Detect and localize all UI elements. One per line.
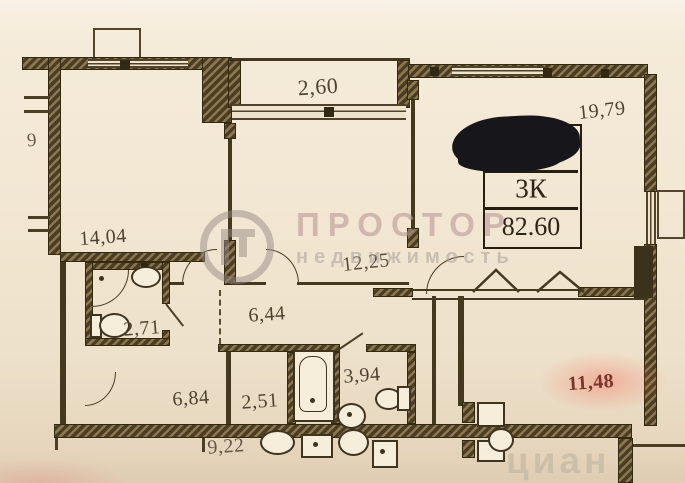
watermark-logo-glyph [239, 237, 247, 257]
exterior-basket [657, 190, 685, 239]
watermark-logo [200, 210, 274, 284]
wall-stub [24, 96, 50, 99]
bathtub-inner [299, 356, 327, 412]
wall-bottom-right-vert [618, 438, 633, 483]
wall-1148-top-chunk [578, 287, 636, 297]
bathtub-drain [310, 398, 315, 403]
wc-door-leaf [337, 332, 363, 350]
duct-box [372, 440, 398, 468]
wall-stub [28, 216, 50, 219]
balcony-stub-top-left [93, 28, 141, 59]
kitchen-unit [477, 402, 505, 427]
balcony-window-tick [324, 107, 334, 117]
area-label-room-bottom-right: 11,48 [567, 370, 615, 396]
wall-tick [120, 60, 130, 69]
area-label-living: 19,79 [577, 97, 627, 125]
wall-under-14 [60, 252, 205, 262]
area-label-room-left: 14,04 [79, 225, 128, 251]
bathroom-wall-right [162, 262, 170, 304]
wall-below-stub [202, 438, 205, 452]
sink-tap [141, 263, 148, 267]
duct-dot [380, 449, 385, 454]
wall-tick [543, 68, 552, 77]
paper-pink-shadow [0, 458, 130, 483]
wall-stub [24, 110, 50, 113]
wall-below-line [633, 444, 685, 447]
window-top-right [452, 66, 544, 76]
watermark-logo-glyph [221, 237, 229, 265]
duct-dot [313, 442, 318, 447]
shower-drain [99, 276, 104, 281]
wall-14-12-chunk [224, 123, 236, 139]
bathroom-door-leaf [165, 303, 184, 326]
sink-fixture [260, 430, 295, 455]
floorplan-photo: 2,60 19,79 14,04 12,25 2,71 6,44 6,84 2,… [0, 0, 685, 483]
wall-684-251 [226, 352, 231, 424]
balcony-wall-left [228, 60, 241, 108]
watermark-cian: циан [506, 440, 610, 482]
area-label-hallway-lower: 6,84 [172, 386, 211, 412]
wall-shaft [432, 296, 436, 424]
window-right [646, 192, 656, 244]
wall-corridor-top [297, 282, 409, 285]
wall-below-stub [55, 438, 58, 450]
toilet-tank [397, 386, 411, 411]
balcony-top-edge [228, 58, 410, 61]
sink-fixture [338, 429, 369, 456]
window-top-left [88, 59, 188, 68]
sink-drain [347, 412, 352, 417]
wardrobe-zigzag-icon [536, 270, 585, 293]
area-label-neighbor: 9,22 [207, 434, 246, 460]
area-label-edge: 9 [26, 130, 38, 153]
door-arc-684 [85, 372, 116, 406]
wall-1148-left [458, 296, 464, 406]
balcony-window [232, 104, 406, 120]
wardrobe-zigzag-icon [472, 268, 520, 293]
partition-dashed [219, 290, 223, 344]
wall-lowerrooms-top [366, 344, 416, 352]
stamp-room-count: 3К [515, 174, 547, 205]
sink-fixture [131, 266, 161, 288]
area-label-wc: 3,94 [343, 363, 382, 389]
wall-left-lower [60, 255, 66, 425]
wall-left-upper [48, 57, 61, 255]
area-label-bath-small: 2,51 [241, 389, 280, 415]
area-label-balcony: 2,60 [297, 73, 339, 102]
wall-pillar-right [634, 246, 653, 298]
wall-tick [430, 67, 439, 76]
wall-right-upper [644, 74, 657, 192]
watermark-logo-glyph [221, 229, 255, 237]
watermark-brand: ПРОСТОР [296, 206, 513, 244]
area-label-bathroom: 2,71 [123, 316, 162, 342]
kitchen-unit [462, 440, 475, 458]
wall-stub [28, 229, 50, 232]
wall-12-19-chunk [407, 80, 419, 100]
area-label-hallway: 6,44 [248, 302, 287, 328]
watermark-subtitle: недвижимость [296, 246, 515, 269]
kitchen-unit [462, 402, 475, 423]
wall-1148-top-chunk [373, 288, 413, 297]
wall-tick [601, 69, 609, 77]
shower-fixture [92, 270, 129, 307]
